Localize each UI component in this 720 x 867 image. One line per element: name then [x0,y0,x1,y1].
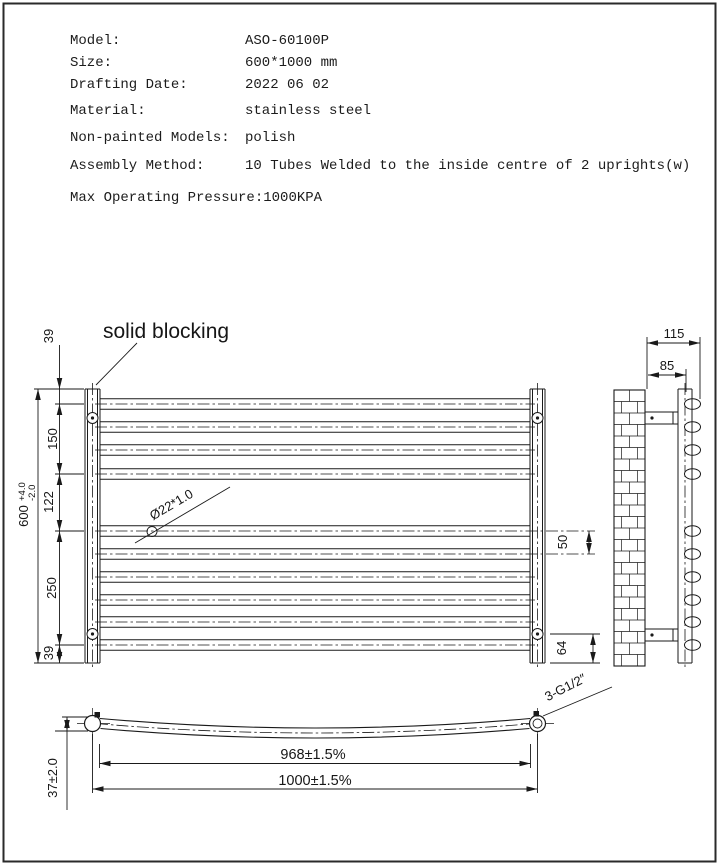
solid-blocking-leader [96,343,137,385]
technical-drawing: solid blocking Ø22*1.0 39 150 122 250 39… [0,0,720,867]
thread-spec-label: 3-G1/2″ [542,670,589,704]
thread-callout: 3-G1/2″ [542,670,589,704]
tube-spec-balloon [147,527,157,537]
dim-arrow [590,652,596,663]
line-work [34,337,700,810]
dim-arrow [647,340,658,346]
dim-overall-height-group: 600 +4.0 -2.0 [16,482,38,527]
tube-spec-callout: Ø22*1.0 [147,486,196,523]
curved-tube-top-edge [100,719,530,729]
dim-lower-span: 250 [44,577,59,599]
mounting-hole-center [91,416,94,419]
mounting-hole-center [91,632,94,635]
dim-arrow [57,463,63,474]
dim-arrow [590,634,596,645]
dim-arrow [57,652,63,663]
dim-bow-depth: 37±2.0 [45,758,60,798]
dim-arrow [586,531,592,542]
dim-overall-height: 600 [16,505,31,527]
bracket-screw [650,633,653,636]
dim-inner-width: 968±1.5% [280,747,345,763]
dim-arrow [57,474,63,485]
dim-arrow [100,761,111,767]
dimension-arrows [35,340,700,792]
dim-arrow [689,340,700,346]
mounting-hole-center [536,632,539,635]
dim-depth-overall: 115 [664,326,685,341]
dim-arrow [35,389,41,400]
dim-arrow [57,520,63,531]
tube-spec-label: Ø22*1.0 [147,486,196,523]
dim-arrow [57,531,63,542]
dim-tube-pitch: 50 [555,535,570,549]
weld-nub [534,711,540,717]
dim-overall-width: 1000±1.5% [278,773,351,789]
dim-arrow [586,543,592,554]
dim-arrow [35,652,41,663]
solid-blocking-callout: solid blocking [103,320,229,343]
drawing-sheet: Model:ASO-60100P Size:600*1000 mm Drafti… [0,0,720,867]
dim-bottom-offset: 39 [41,646,56,660]
bracket-screw [650,416,653,419]
dim-upper-span: 150 [45,428,60,450]
dim-arrow [520,761,531,767]
dim-depth-to-rail: 85 [660,358,674,373]
dim-bracket-offset: 64 [554,641,569,655]
dim-tolerance-minus: -2.0 [27,485,38,501]
dim-top-offset: 39 [41,329,56,343]
dim-arrow [648,372,659,378]
mounting-hole-center [536,416,539,419]
left-upright-section [85,716,101,732]
wall-brick-hatch [614,390,645,666]
curved-tube-bottom-edge [101,729,530,739]
dim-arrow [93,786,104,792]
dim-arrow [675,372,686,378]
dim-arrow [57,634,63,645]
right-upright-section [530,716,546,732]
bottom-view [85,711,546,738]
dim-arrow [57,378,63,389]
dim-arrow [57,404,63,415]
weld-nub [95,712,101,718]
dim-mid-gap: 122 [41,491,56,513]
dim-arrow [527,786,538,792]
